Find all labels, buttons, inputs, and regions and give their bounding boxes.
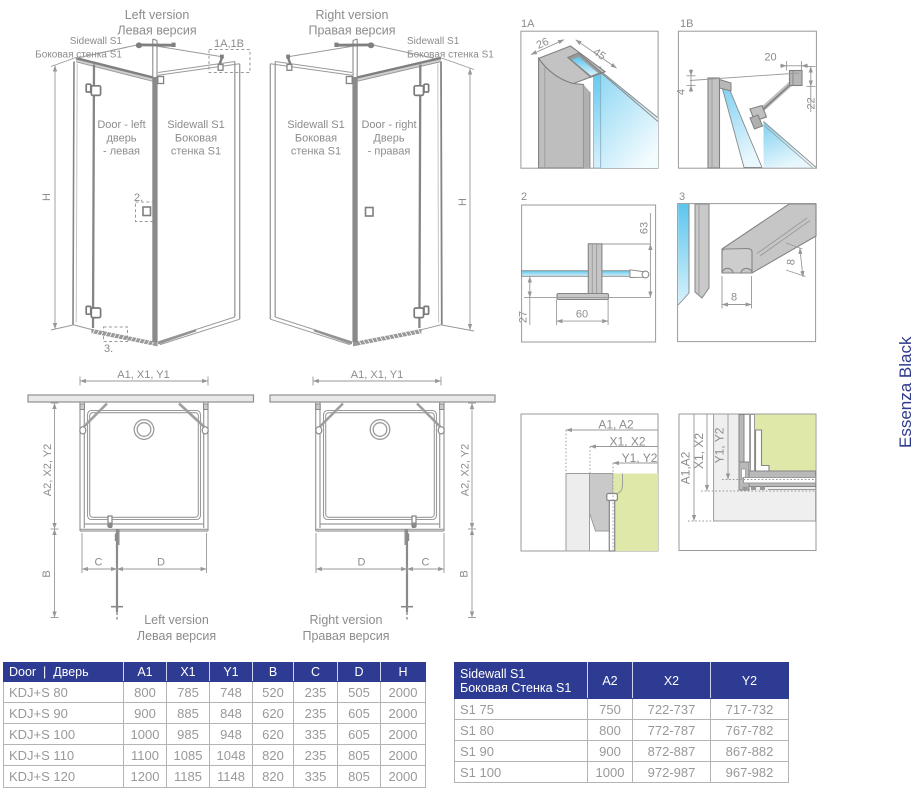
svg-text:H: H bbox=[41, 193, 53, 201]
svg-text:Sidewall S1: Sidewall S1 bbox=[167, 119, 224, 131]
svg-text:Правая версия: Правая версия bbox=[309, 24, 396, 38]
svg-text:Sidewall S1: Sidewall S1 bbox=[407, 36, 460, 47]
svg-text:Дверь: Дверь bbox=[373, 133, 404, 145]
svg-text:- левая: - левая bbox=[103, 146, 140, 158]
svg-text:D: D bbox=[157, 557, 165, 569]
svg-text:60: 60 bbox=[576, 309, 588, 321]
svg-text:Боковая: Боковая bbox=[175, 133, 217, 145]
svg-text:H: H bbox=[457, 198, 469, 206]
svg-text:2: 2 bbox=[521, 191, 527, 203]
svg-text:20: 20 bbox=[764, 52, 776, 64]
svg-text:A1, A2: A1, A2 bbox=[598, 418, 634, 432]
svg-text:B: B bbox=[459, 570, 471, 577]
svg-text:Y1, Y2: Y1, Y2 bbox=[712, 427, 726, 463]
svg-text:Левая версия: Левая версия bbox=[137, 629, 216, 643]
svg-text:1B: 1B bbox=[680, 18, 693, 30]
svg-text:1A: 1A bbox=[521, 18, 535, 30]
svg-text:8: 8 bbox=[785, 259, 798, 266]
svg-text:8: 8 bbox=[731, 292, 737, 304]
svg-text:63: 63 bbox=[639, 222, 651, 234]
svg-text:A2, X2, Y2: A2, X2, Y2 bbox=[460, 444, 472, 496]
svg-text:A1, X1, Y1: A1, X1, Y1 bbox=[351, 369, 403, 381]
svg-text:Sidewall S1: Sidewall S1 bbox=[70, 36, 123, 47]
svg-text:Right version: Right version bbox=[316, 8, 389, 22]
svg-text:X1, X2: X1, X2 bbox=[609, 435, 645, 449]
svg-text:Left version: Left version bbox=[144, 613, 209, 627]
svg-text:Door - right: Door - right bbox=[361, 119, 416, 131]
svg-text:1A,1B: 1A,1B bbox=[214, 38, 244, 50]
svg-text:B: B bbox=[41, 570, 53, 577]
svg-text:X1, X2: X1, X2 bbox=[692, 433, 706, 469]
svg-text:дверь: дверь bbox=[106, 133, 136, 145]
svg-text:Sidewall S1: Sidewall S1 bbox=[287, 119, 344, 131]
svg-text:2.: 2. bbox=[134, 192, 143, 204]
svg-text:Essenza Black: Essenza Black bbox=[896, 336, 915, 448]
svg-text:4: 4 bbox=[676, 89, 688, 95]
svg-text:A1, X1, Y1: A1, X1, Y1 bbox=[117, 369, 169, 381]
svg-text:A1,A2: A1,A2 bbox=[679, 451, 693, 484]
svg-text:A2, X2, Y2: A2, X2, Y2 bbox=[42, 444, 54, 496]
svg-text:Правая версия: Правая версия bbox=[303, 629, 390, 643]
svg-text:Left version: Left version bbox=[125, 8, 190, 22]
svg-text:Боковая: Боковая bbox=[295, 133, 337, 145]
svg-text:стенка S1: стенка S1 bbox=[291, 146, 341, 158]
svg-text:Левая версия: Левая версия bbox=[117, 24, 196, 38]
svg-text:C: C bbox=[422, 557, 430, 569]
svg-text:C: C bbox=[95, 557, 103, 569]
svg-text:Door - left: Door - left bbox=[97, 119, 145, 131]
svg-text:Right version: Right version bbox=[310, 613, 383, 627]
svg-text:3.: 3. bbox=[104, 343, 113, 355]
svg-text:26: 26 bbox=[535, 36, 551, 52]
svg-text:D: D bbox=[358, 557, 366, 569]
svg-text:3: 3 bbox=[679, 191, 685, 203]
svg-text:22: 22 bbox=[806, 97, 818, 109]
svg-text:27: 27 bbox=[518, 311, 530, 323]
svg-text:стенка S1: стенка S1 bbox=[171, 146, 221, 158]
svg-text:Y1, Y2: Y1, Y2 bbox=[622, 451, 658, 465]
svg-text:- правая: - правая bbox=[368, 146, 411, 158]
